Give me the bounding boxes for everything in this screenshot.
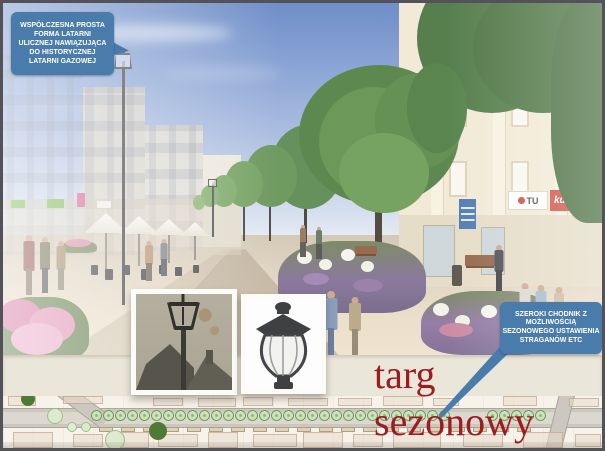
plan-stall [319, 427, 333, 432]
shop-sign-green [47, 199, 64, 208]
pink-flowers [439, 323, 473, 337]
pink-bloom [11, 323, 63, 355]
plan-tree-pale [47, 408, 63, 424]
plan-stall [253, 427, 267, 432]
hydrangea [341, 249, 355, 261]
modern-lantern-product-card [241, 294, 326, 394]
plan-tree [187, 410, 198, 421]
shop-sign-white [97, 201, 111, 208]
tu-logo-dot-icon [518, 197, 525, 204]
umbrella-pole [105, 231, 107, 269]
lantern-callout: WSPÓŁCZESNA PROSTA FORMA LATARNI ULICZNE… [11, 12, 114, 75]
plan-stall [275, 427, 289, 432]
plan-tree [103, 410, 114, 421]
historic-gas-lantern-icon [136, 294, 232, 390]
umbrella-pole [168, 233, 170, 263]
lavender [303, 273, 329, 285]
plan-tree [283, 410, 294, 421]
plan-tree [235, 410, 246, 421]
plan-tree [127, 410, 138, 421]
modern-lantern-icon [246, 299, 321, 389]
plan-building [288, 398, 328, 406]
plan-tree [199, 410, 210, 421]
plan-tree [307, 410, 318, 421]
tree-trunk [269, 201, 271, 241]
hydrangea [319, 259, 332, 270]
cafe-chair [105, 269, 113, 280]
plan-tree [115, 410, 126, 421]
plan-tree [295, 410, 306, 421]
cloud [163, 67, 283, 79]
plan-stall [209, 427, 223, 432]
umbrella-pole [138, 232, 140, 266]
presentation-board: TU kupis [0, 0, 605, 451]
hydrangea [481, 305, 497, 318]
plan-tree [151, 410, 162, 421]
sidewalk-callout: SZEROKI CHODNIK Z MOŻLIWOŚCIĄ SEZONOWEGO… [500, 302, 602, 354]
lamp-cage [114, 53, 132, 69]
plan-building [153, 398, 183, 406]
plan-building [198, 398, 236, 407]
plan-tree [175, 410, 186, 421]
modern-lantern-image [246, 299, 321, 389]
tree-right [407, 63, 467, 153]
shop-window [423, 225, 455, 277]
plan-tree [247, 410, 258, 421]
plan-tree [211, 410, 222, 421]
plan-building [63, 396, 103, 404]
distant-lamp-pole [212, 185, 214, 237]
historic-lantern-photo [136, 294, 232, 390]
plan-stall [187, 427, 201, 432]
plan-tree [331, 410, 342, 421]
plan-building [338, 398, 372, 406]
cafe-chair [175, 267, 182, 276]
historic-lantern-photo-card [131, 289, 237, 395]
plan-stall [165, 427, 179, 432]
plan-tree-pale [81, 422, 91, 432]
plan-tree [163, 410, 174, 421]
plan-stall [297, 427, 311, 432]
plan-building [243, 397, 273, 406]
umbrella-pole [194, 234, 196, 260]
shop-sign-tu-label: TU [527, 196, 539, 206]
plan-stall [121, 427, 135, 432]
plan-tree [343, 410, 354, 421]
tree-right-edge [551, 3, 602, 223]
bench [355, 246, 377, 254]
plan-tree [355, 410, 366, 421]
cafe-chair [91, 265, 98, 275]
plan-stall [231, 427, 245, 432]
shop-sign-green [11, 200, 25, 208]
big-tree-canopy [339, 133, 429, 213]
plan-stall [341, 427, 355, 432]
tree [193, 195, 205, 210]
planter-flowers [65, 239, 91, 247]
bench [465, 255, 495, 266]
plan-tree [319, 410, 330, 421]
distant-lamp-head [208, 179, 217, 187]
plan-tree [91, 410, 102, 421]
trash-bin [452, 265, 462, 286]
tree-trunk [243, 207, 245, 241]
street-lamp-pole [122, 61, 125, 305]
plan-tree [259, 410, 270, 421]
blue-info-sign [459, 199, 476, 229]
hydrangea [433, 303, 449, 316]
shop-sign-pink [77, 193, 85, 207]
plan-tree [139, 410, 150, 421]
lavender [353, 279, 383, 292]
hydrangea [361, 261, 374, 272]
cafe-chair [193, 265, 199, 273]
window [449, 161, 467, 197]
plan-tree [223, 410, 234, 421]
plan-tree [271, 410, 282, 421]
shop-sign-tu: TU [508, 191, 548, 210]
plan-tree-solid [149, 422, 167, 440]
plan-tree-pale [67, 422, 77, 432]
